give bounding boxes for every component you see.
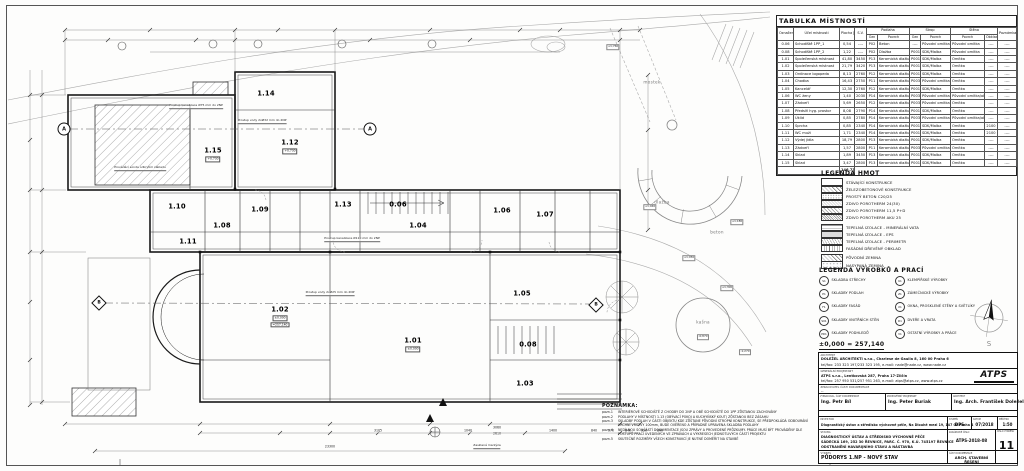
product-code-badge: V1 — [895, 329, 905, 339]
table-cell: WC muži — [794, 130, 840, 137]
legend-product-item: PD1SKLADBY PODHLEDŮ — [819, 329, 893, 339]
table-row: 1.09Úklid0,852780P14Keramická dlažbaP003… — [778, 115, 1017, 122]
table-cell: P001 — [910, 107, 921, 114]
table-cell: ---- — [998, 115, 1017, 122]
legend-material-item: TEPELNÁ IZOLACE - PERIMETR — [821, 238, 1017, 245]
table-cell: 1,71 — [840, 130, 855, 137]
notes-block: POZNÁMKA: pozn.1INTERIÉROVÉ SCHODIŠTĚ Z … — [602, 404, 816, 442]
table-row: 1.06WC ženy1,402030P14Keramická dlažbaP0… — [778, 93, 1017, 100]
table-row: 1.10Sprcha0,852340P14Keramická dlažbaP00… — [778, 122, 1017, 129]
table-cell: SDK/Malba — [921, 137, 951, 144]
table-cell: 1.03 — [778, 70, 794, 77]
product-code-badge: K1 — [895, 276, 905, 286]
table-cell: 8,08 — [840, 107, 855, 114]
material-label: ZDIVO POROTHERM 11,5 P+D — [846, 208, 905, 213]
material-label: TEPELNÁ IZOLACE - MINERÁLNÍ VATA — [846, 225, 919, 230]
person-role-label: ZODPOVĚDNÝ PROJEKTANT — [887, 395, 917, 398]
table-cell: P02 — [867, 48, 878, 55]
table-cell: 1.02 — [778, 63, 794, 70]
table-cell: ---- — [985, 56, 998, 63]
material-label: ZDIVO POROTHERM 24(30) — [846, 201, 900, 206]
column-header: Strop — [910, 28, 951, 35]
atps-logo: ATPS — [974, 371, 1014, 383]
table-cell: 1.11 — [778, 130, 794, 137]
table-cell: Keramická dlažba — [878, 130, 910, 137]
table-cell: ---- — [985, 152, 998, 159]
column-header: Podlaha — [867, 28, 910, 35]
column-header: Obklad — [985, 34, 998, 41]
elevation-label: +1,180 — [730, 219, 743, 225]
table-row: 0.06Schodiště 1PP_10,54----P02Beton----P… — [778, 41, 1017, 48]
table-cell: P14 — [867, 122, 878, 129]
table-cell: Zádveří — [794, 100, 840, 107]
product-label: OSTATNÍ VÝROBKY A PRÁCE — [908, 332, 957, 336]
table-cell: Schodiště 1PP_1 — [794, 41, 840, 48]
note-text: SKLADBY PODLAH V ČÁSTI OBJEKTU KDE ZŮSTA… — [618, 419, 816, 427]
legend-material-item: PŮVODNÍ ZEMINA — [821, 254, 1017, 261]
table-cell: ---- — [985, 144, 998, 151]
table-cell: P001 — [910, 56, 921, 63]
table-cell: 0,85 — [840, 122, 855, 129]
bay-window — [153, 270, 204, 364]
tree — [606, 281, 638, 313]
table-cell: 2760 — [855, 70, 867, 77]
column-header: Povrch — [878, 34, 910, 41]
table-cell: 1,57 — [840, 144, 855, 151]
table-cell: P13 — [867, 63, 878, 70]
table-row: 1.03Ordinace logopeda8,132760P12Keramick… — [778, 70, 1017, 77]
table-cell: SDK/Malba — [921, 85, 951, 92]
elevation-label: +1,760 — [606, 44, 619, 50]
leader-note: Prostup vody 2xØ25 mm do 2NP — [306, 291, 355, 296]
column-header: Ozn — [910, 34, 921, 41]
table-cell: SDK/Malba — [921, 159, 951, 166]
table-cell: 18,79 — [840, 137, 855, 144]
legend-product-item: S1SKLADBA STŘECHY — [819, 276, 893, 286]
table-cell: WC ženy — [794, 93, 840, 100]
legend-material-item: ŽELEZOBETONOVÉ KONSTRUKCE — [821, 186, 1017, 193]
room-table: TABULKA MÍSTNOSTÍ Označení na výkresuÚče… — [776, 15, 1017, 176]
table-cell: P003 — [910, 78, 921, 85]
table-cell: ---- — [985, 93, 998, 100]
table-cell: P11 — [867, 78, 878, 85]
notes-title: POZNÁMKA: — [602, 404, 816, 409]
title-block-general-designer: GENERÁLNÍ PROJEKTANT ATPS s.r.o., Lentko… — [819, 368, 1017, 384]
table-cell: ---- — [998, 100, 1017, 107]
table-row: 1.15Sklad3,472800P13Keramická dlažbaP001… — [778, 159, 1017, 166]
table-cell: Omítka — [951, 70, 985, 77]
table-cell: 2790 — [855, 107, 867, 114]
table-cell: 1.04 — [778, 78, 794, 85]
material-label: TEPELNÁ IZOLACE - EPS — [846, 232, 894, 237]
elevation-label: +1,050 — [682, 255, 695, 261]
table-cell: ---- — [985, 100, 998, 107]
table-cell: 0,54 — [840, 41, 855, 48]
product-label: KLEMPÍŘSKÉ VÝROBKY — [908, 279, 948, 283]
table-cell: P02 — [867, 41, 878, 48]
table-cell: ---- — [910, 41, 921, 48]
note-number: pozn.2 — [602, 415, 616, 419]
product-label: SKLADBY VNITŘNÍCH STĚN — [832, 319, 879, 323]
legend-product-item: F1SKLADBY FASÁD — [819, 302, 893, 312]
table-cell: P001 — [910, 159, 921, 166]
table-cell: Původní omítka — [921, 144, 951, 151]
table-cell: SDK/Malba — [921, 70, 951, 77]
table-cell: ---- — [985, 159, 998, 166]
table-cell: P003 — [910, 100, 921, 107]
table-cell: P12 — [867, 70, 878, 77]
product-code-badge: D1 — [895, 316, 905, 326]
table-cell: Původní omítka — [921, 93, 951, 100]
table-cell: Keramická dlažba — [878, 56, 910, 63]
table-cell: 2030 — [855, 93, 867, 100]
title-block-datum: DATUM 07/2018 — [971, 417, 997, 429]
table-cell: Společenská místnost — [794, 56, 840, 63]
table-cell: ---- — [998, 48, 1017, 55]
table-cell: SDK/Malba — [921, 130, 951, 137]
elevation-label: +1,300 — [720, 285, 733, 291]
column-header: Stěna — [951, 28, 998, 35]
table-cell: 2780 — [855, 115, 867, 122]
dimension-value: 23300 — [325, 446, 335, 449]
dimension-value: 840 — [591, 430, 597, 433]
table-cell: 1.14 — [778, 152, 794, 159]
product-code-badge: F1 — [819, 302, 829, 312]
table-cell: 2340 — [855, 130, 867, 137]
table-cell: Keramická dlažba — [878, 122, 910, 129]
table-cell: 1.05 — [778, 85, 794, 92]
table-cell: Keramická dlažba — [878, 144, 910, 151]
table-cell: 0,85 — [840, 115, 855, 122]
material-label: PŮVODNÍ ZEMINA — [846, 255, 881, 260]
table-cell: 8,13 — [840, 70, 855, 77]
table-cell: Omítka — [951, 63, 985, 70]
stairs — [368, 192, 622, 409]
table-cell: 2800 — [855, 144, 867, 151]
table-cell: P001 — [910, 130, 921, 137]
note-item: pozn.5SKUTEČNÉ ROZMĚRY VŠECH KONSTRUKCÍ … — [602, 437, 816, 441]
table-cell: ---- — [998, 70, 1017, 77]
table-cell: Původní omítka — [951, 48, 985, 55]
section-marker-letter: B — [594, 303, 597, 308]
table-cell: P001 — [910, 85, 921, 92]
column-header: Účel místnosti — [794, 28, 840, 41]
title-block-zakazka: ZAKÁZKOVÉ ČÍSLO ATPS-2018-08 — [947, 430, 995, 450]
table-cell: Omítka — [951, 130, 985, 137]
table-cell: ---- — [998, 130, 1017, 137]
table-cell: Původní omítka — [951, 41, 985, 48]
table-cell: 2100 — [985, 130, 998, 137]
column-header: Označení na výkresu — [778, 28, 794, 41]
legend-materials: LEGENDA HMOT STÁVAJÍCÍ KONSTRUKCEŽELEZOB… — [821, 170, 1017, 269]
table-cell: P003 — [910, 144, 921, 151]
title-block-people: VYPRACOVAL, ČÁST DOKUMENTACEIng. Petr Bí… — [819, 393, 1017, 410]
person-name: Ing. Arch. František Doležel — [954, 400, 1024, 405]
interior-partitions — [150, 95, 620, 402]
table-cell: Beton — [878, 41, 910, 48]
leader-note: Prostup kanalizace Ø110 mm do 2NP — [324, 237, 380, 242]
table-cell: ---- — [985, 107, 998, 114]
table-row: 1.13Zádveří1,572800P11Keramická dlažbaP0… — [778, 144, 1017, 151]
table-cell: ---- — [998, 63, 1017, 70]
table-cell: 2800 — [855, 159, 867, 166]
wall-junctions — [199, 188, 622, 422]
legend-materials-title: LEGENDA HMOT — [821, 170, 1017, 177]
table-cell: 1.15 — [778, 159, 794, 166]
person-name: Ing. Peter Buriak — [888, 400, 931, 405]
title-block-stupen: STUPEŇ DPS — [947, 417, 971, 429]
table-cell: ---- — [998, 85, 1017, 92]
table-cell: SDK/Malba — [921, 63, 951, 70]
table-cell: Omítka — [951, 122, 985, 129]
title-block-doc-part-author: ZPRACOVATEL ČÁSTI DOKUMENTACE -- — [819, 384, 1017, 393]
product-code-badge: S01 — [819, 316, 829, 326]
table-cell: SDK/Malba — [921, 107, 951, 114]
table-cell: Původní omítka — [921, 100, 951, 107]
table-cell: P13 — [867, 159, 878, 166]
table-cell: Omítka — [951, 56, 985, 63]
site-label: kašna — [696, 320, 710, 325]
product-label: SKLADBY FASÁD — [832, 305, 861, 309]
table-cell: Omítka — [951, 78, 985, 85]
product-code-badge: Z1 — [895, 289, 905, 299]
table-cell: SDK/Malba — [921, 152, 951, 159]
table-cell: 2760 — [855, 85, 867, 92]
table-cell: ---- — [998, 107, 1017, 114]
table-cell: P14 — [867, 93, 878, 100]
table-cell: 1.01 — [778, 56, 794, 63]
person-role-label: VYPRACOVAL, ČÁST DOKUMENTACE — [820, 395, 859, 398]
table-cell: Původní omítka/obklad — [951, 93, 985, 100]
table-cell: Úklid — [794, 115, 840, 122]
table-cell: Keramická dlažba — [878, 93, 910, 100]
table-row: 1.12Výdej jídla18,792800P13Keramická dla… — [778, 137, 1017, 144]
fountain — [676, 298, 730, 352]
note-number: pozn.5 — [602, 437, 616, 441]
table-cell: 0.08 — [778, 48, 794, 55]
table-cell: P13 — [867, 152, 878, 159]
table-cell: Omítka — [951, 144, 985, 151]
title-block-person: VYPRACOVAL, ČÁST DOKUMENTACEIng. Petr Bí… — [819, 394, 885, 410]
legend-material-item: ZDIVO POROTHERM 24(30) — [821, 200, 1017, 207]
table-cell: P14 — [867, 115, 878, 122]
table-cell: P14 — [867, 130, 878, 137]
north-compass: S — [966, 296, 1014, 350]
table-cell: Keramická dlažba — [878, 115, 910, 122]
table-cell: Omítka — [951, 100, 985, 107]
table-cell: ---- — [855, 41, 867, 48]
compass-south-label: S — [987, 340, 992, 348]
table-cell: SDK/Malba — [921, 122, 951, 129]
site-label: mostek — [643, 80, 660, 85]
table-cell: Předsíň hyg. prostor — [794, 107, 840, 114]
table-cell: P003 — [910, 93, 921, 100]
table-cell: 5,69 — [840, 100, 855, 107]
table-cell: 3,47 — [840, 159, 855, 166]
table-cell: ---- — [985, 63, 998, 70]
table-cell: Omítka — [951, 137, 985, 144]
drawing-sheet: 1.15+0,7301.141.12+0,7301.101.111.081.09… — [0, 0, 1024, 471]
table-cell: ---- — [998, 93, 1017, 100]
section-marker-A: A — [58, 123, 71, 136]
leader-note: Zasklená markýza — [473, 444, 500, 449]
table-cell: Společenská místnost — [794, 63, 840, 70]
table-cell: Kancelář — [794, 85, 840, 92]
note-number: pozn.4 — [602, 428, 616, 436]
table-cell: 2800 — [855, 137, 867, 144]
table-cell: Keramická dlažba — [878, 63, 910, 70]
legend-material-item: FASÁDNÍ DŘEVĚNÝ OBKLAD — [821, 245, 1017, 252]
table-cell: 12,30 — [840, 85, 855, 92]
table-cell: ---- — [985, 70, 998, 77]
table-cell: 1.13 — [778, 144, 794, 151]
table-cell: Chodba — [794, 78, 840, 85]
table-cell: P11 — [867, 144, 878, 151]
table-cell: P12 — [867, 85, 878, 92]
room-table-title: TABULKA MÍSTNOSTÍ — [777, 16, 1016, 27]
column-header: Povrch — [951, 34, 985, 41]
product-code-badge: S1 — [819, 276, 829, 286]
title-block-investor: INVESTOR Diagnostický ústav a středisko … — [819, 416, 1017, 429]
table-row: 1.14Sklad1,893450P13Keramická dlažbaP001… — [778, 152, 1017, 159]
elevation-label: -0,870 — [697, 334, 709, 340]
material-label: TEPELNÁ IZOLACE - PERIMETR — [846, 239, 906, 244]
table-cell: Ordinace logopeda — [794, 70, 840, 77]
table-cell: 1,22 — [840, 48, 855, 55]
table-cell: 2340 — [855, 122, 867, 129]
table-cell: 3450 — [855, 56, 867, 63]
note-item: pozn.1INTERIÉROVÉ SCHODIŠTĚ Z CHODBY DO … — [602, 410, 816, 414]
product-code-badge: X1 — [895, 302, 905, 312]
note-item: pozn.4NEDÍLNOU SOUČÁSTÍ DOKUMENTACE JSOU… — [602, 428, 816, 436]
title-block: ARCHITEKT DOLEŽEL ARCHITEKTI s.r.o., Cha… — [818, 352, 1018, 464]
leader-note: Prováděcí sonda odkrytím základu — [114, 166, 166, 171]
table-cell: Původní omítka/obklad — [951, 115, 985, 122]
table-cell: ---- — [998, 159, 1017, 166]
column-header: S.V. — [855, 28, 867, 41]
table-cell: 1.09 — [778, 115, 794, 122]
product-label: DVEŘE A VRATA — [908, 319, 936, 323]
table-row: 1.05Kancelář12,302760P12Keramická dlažba… — [778, 85, 1017, 92]
legend-product-item: P1SKLADBY PODLAH — [819, 289, 893, 299]
note-item: pozn.3SKLADBY PODLAH V ČÁSTI OBJEKTU KDE… — [602, 419, 816, 427]
table-cell: SDK/Malba — [921, 56, 951, 63]
legend-products: LEGENDA VÝROBKŮ A PRACÍ S1SKLADBA STŘECH… — [819, 267, 987, 342]
table-cell: Omítka — [951, 85, 985, 92]
table-cell: P001 — [910, 137, 921, 144]
table-cell: ---- — [998, 41, 1017, 48]
dimension-value: 1400 — [549, 430, 557, 433]
table-cell: ---- — [855, 48, 867, 55]
elevation-reference: ±0,000 = 257,140 — [819, 341, 884, 350]
legend-material-item: TEPELNÁ IZOLACE - MINERÁLNÍ VATA — [821, 224, 1017, 231]
table-cell: Původní omítka — [921, 78, 951, 85]
legend-material-item: ZDIVO POROTHERM AKU 25 — [821, 214, 1017, 221]
legend-product-item: K1KLEMPÍŘSKÉ VÝROBKY — [895, 276, 989, 286]
material-label: ZDIVO POROTHERM AKU 25 — [846, 215, 901, 220]
table-cell: P001 — [910, 70, 921, 77]
material-swatch — [821, 214, 843, 221]
person-name: Ing. Petr Bíl — [821, 400, 851, 405]
table-cell: 2100 — [985, 122, 998, 129]
table-cell: Sklad — [794, 152, 840, 159]
table-cell: Keramická dlažba — [878, 159, 910, 166]
elevation-label: +1,040 — [643, 204, 656, 210]
legend-material-item: ZDIVO POROTHERM 11,5 P+D — [821, 207, 1017, 214]
table-row: 1.04Chodba16,432750P11Keramická dlažbaP0… — [778, 78, 1017, 85]
dimension-value: 1040 — [464, 430, 472, 433]
table-cell: Keramická dlažba — [878, 85, 910, 92]
table-cell: Keramická dlažba — [878, 137, 910, 144]
table-cell: P001 — [910, 122, 921, 129]
table-cell: ---- — [998, 78, 1017, 85]
table-cell: Omítka — [951, 152, 985, 159]
column-header: Povrch — [921, 34, 951, 41]
note-text: NEDÍLNOU SOUČÁSTÍ DOKUMENTACE JSOU ZPRÁV… — [618, 428, 816, 436]
product-code-badge: PD1 — [819, 329, 829, 339]
table-cell: Omítka — [951, 107, 985, 114]
table-cell: P001 — [910, 48, 921, 55]
table-cell: 1.08 — [778, 107, 794, 114]
product-label: ZÁMEČNICKÉ VÝROBKY — [908, 292, 949, 296]
table-cell: ---- — [985, 115, 998, 122]
title-block-person: ZODPOVĚDNÝ PROJEKTANTIng. Peter Buriak — [885, 394, 951, 410]
table-row: 1.02Společenská místnost21,793420P13Kera… — [778, 63, 1017, 70]
table-cell: ---- — [998, 122, 1017, 129]
dimension-value: 3105 — [374, 430, 382, 433]
table-cell: SDK/Malba — [921, 48, 951, 55]
legend-material-item: STÁVAJÍCÍ KONSTRUKCE — [821, 179, 1017, 186]
table-cell: P001 — [910, 152, 921, 159]
table-cell: Výdej jídla — [794, 137, 840, 144]
table-row: 1.07Zádveří5,692650P12Keramická dlažbaP0… — [778, 100, 1017, 107]
table-cell: 1,40 — [840, 93, 855, 100]
table-cell: ---- — [998, 137, 1017, 144]
table-cell: Keramická dlažba — [878, 152, 910, 159]
dimension-value: 3060 — [493, 427, 501, 430]
table-row: 1.08Předsíň hyg. prostor8,082790P14Keram… — [778, 107, 1017, 114]
title-block-drawing-number: ČÍSLO VÝKRESU 11 — [995, 429, 1017, 463]
title-block-architect-office: ARCHITEKT DOLEŽEL ARCHITEKTI s.r.o., Cha… — [819, 353, 1017, 368]
table-cell: 3450 — [855, 152, 867, 159]
site-label: beton — [710, 230, 724, 235]
leader-note: Prostup vody 2xØ32 mm do 2NP — [238, 119, 287, 124]
note-number: pozn.1 — [602, 410, 616, 414]
table-cell: P13 — [867, 137, 878, 144]
table-cell: P12 — [867, 100, 878, 107]
legend-material-item: PROSTÝ BETON C20/25 — [821, 193, 1017, 200]
garden-features — [606, 120, 742, 355]
table-cell: Keramická dlažba — [878, 100, 910, 107]
legend-products-title: LEGENDA VÝROBKŮ A PRACÍ — [819, 267, 987, 274]
table-cell: Původní omítka — [921, 41, 951, 48]
room-table-grid: Označení na výkresuÚčel místnostiPlocha … — [777, 27, 1017, 175]
material-swatch — [821, 245, 843, 252]
table-cell: Původní omítka — [921, 115, 951, 122]
table-cell: ---- — [998, 144, 1017, 151]
table-cell: P13 — [867, 56, 878, 63]
title-block-person: ARCHITEKTIng. Arch. František Doležel — [951, 394, 1017, 410]
table-cell: Keramická dlažba — [878, 107, 910, 114]
material-label: ŽELEZOBETONOVÉ KONSTRUKCE — [846, 187, 911, 192]
table-cell: Schodiště 1PP_2 — [794, 48, 840, 55]
table-cell: ---- — [985, 137, 998, 144]
section-marker-A: A — [364, 123, 377, 136]
table-cell: 1.10 — [778, 122, 794, 129]
column-header: Ozn — [867, 34, 878, 41]
table-cell: P001 — [910, 63, 921, 70]
table-cell: 16,43 — [840, 78, 855, 85]
